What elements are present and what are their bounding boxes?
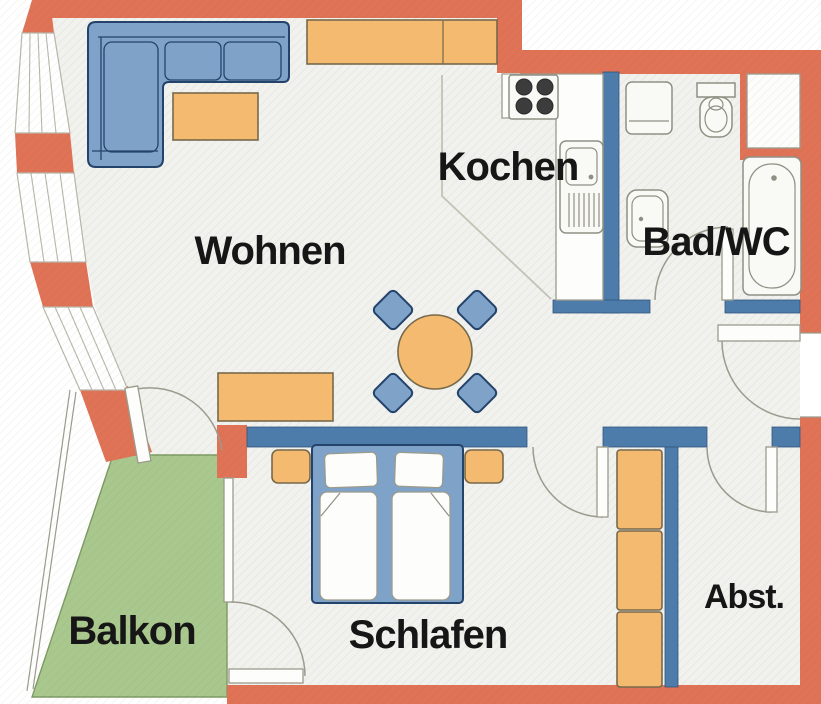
sink-drain (589, 175, 594, 180)
stove-burner-icon (537, 79, 553, 95)
round-dining-table-icon (398, 315, 472, 389)
bath-south-wall-right (725, 300, 800, 313)
sideboard-icon (218, 373, 333, 421)
floor-plan-page: Wohnen Kochen Bad/WC Schlafen Balkon Abs… (0, 0, 821, 704)
hall-wall-middle (603, 427, 707, 447)
entrance-door-leaf (718, 325, 800, 341)
bed-pillow (394, 452, 443, 488)
bed-duvet (320, 492, 377, 600)
hall-wall-right-stub (772, 427, 800, 447)
bath-south-wall-left (553, 300, 650, 313)
double-bed-icon (312, 445, 463, 603)
bed-pillow (324, 452, 377, 488)
bedroom-door-leaf (597, 447, 608, 517)
wardrobe-icon (617, 450, 662, 687)
living-room-label: Wohnen (194, 229, 345, 273)
bath-label: Bad/WC (642, 220, 789, 264)
bedroom-balcony-window-wall (224, 478, 233, 602)
coffee-table-icon (173, 93, 258, 140)
floor-plan-canvas: Wohnen Kochen Bad/WC Schlafen Balkon Abs… (0, 0, 821, 704)
stove-burner-icon (516, 79, 532, 95)
tv-sideboard-icon (307, 20, 497, 64)
toilet-icon (697, 83, 735, 137)
storage-door-leaf (766, 447, 777, 512)
bedroom-balcony-door-leaf (229, 669, 303, 683)
storage-label: Abst. (704, 578, 784, 616)
sink-drainer-lines (569, 193, 599, 227)
bedroom-storage-wall (665, 447, 678, 687)
kitchen-bath-wall (603, 72, 619, 313)
stove-burner-icon (537, 98, 553, 114)
washing-machine-icon (626, 82, 672, 134)
stove-burner-icon (516, 98, 532, 114)
nightstand-icon (465, 450, 503, 483)
balcony-label: Balkon (68, 609, 195, 653)
nightstand-icon (272, 450, 310, 483)
entrance-opening (800, 333, 821, 417)
kitchen-label: Kochen (438, 145, 579, 189)
bedroom-label: Schlafen (349, 613, 508, 657)
bed-duvet (392, 492, 450, 600)
